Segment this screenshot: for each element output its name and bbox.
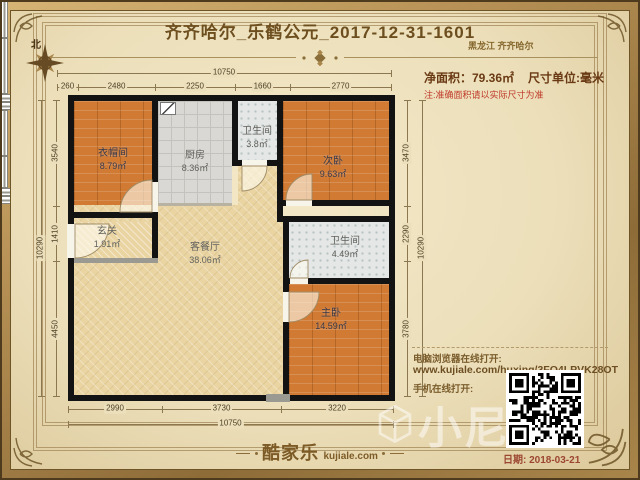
room-label-entry: 玄关 1.91㎡ xyxy=(80,226,134,250)
dimension-line xyxy=(391,70,392,77)
kitchen-threshold xyxy=(158,203,232,206)
dimension-label: 1660 xyxy=(252,83,274,92)
pc-open-label: 电脑浏览器在线打开: xyxy=(413,351,502,365)
dimension-line xyxy=(155,84,156,91)
logo-ornament xyxy=(236,453,250,454)
dimension-label: 10290 xyxy=(37,235,46,261)
room-label-kitchen: 厨房 8.36㎡ xyxy=(164,150,226,174)
wall-outer-right xyxy=(389,95,395,401)
dimension-label: 260 xyxy=(59,83,76,92)
room-label-bedroom2: 次卧 9.63㎡ xyxy=(302,156,364,180)
dimension-line xyxy=(290,84,291,91)
title-divider xyxy=(42,57,296,58)
logo-ornament xyxy=(255,452,258,455)
room-label-living: 客餐厅 38.06㎡ xyxy=(172,242,238,266)
second-bedroom-floor xyxy=(283,101,389,200)
dimension-label: 3220 xyxy=(326,405,348,414)
door-gap-master xyxy=(283,292,289,322)
room-label-closet: 衣帽间 8.79㎡ xyxy=(82,148,144,172)
region-label: 黑龙江 齐齐哈尔 xyxy=(468,39,534,52)
dimension-line xyxy=(419,100,426,101)
door-gap-bath-top xyxy=(242,160,267,166)
dimension-line xyxy=(393,406,394,413)
dimension-line xyxy=(53,100,60,101)
net-area-line: 净面积：79.36㎡尺寸单位:毫米 xyxy=(424,69,618,86)
compass-icon xyxy=(24,42,66,84)
kitchen-flue-icon xyxy=(160,102,176,115)
wall-outer-bottom xyxy=(68,395,395,401)
door-gap-bedroom2 xyxy=(286,200,312,206)
dimension-line xyxy=(68,421,69,428)
door-gap-closet xyxy=(152,182,158,212)
dimension-line xyxy=(38,100,45,101)
dimension-line xyxy=(235,84,236,91)
dimension-label: 2290 xyxy=(403,223,412,245)
balcony-door-frame xyxy=(266,394,290,402)
dimension-line xyxy=(404,396,411,397)
room-label-bath-master: 卫生间 4.49㎡ xyxy=(312,236,378,260)
dimension-label: 10750 xyxy=(211,69,237,78)
floorplan-sheet: 齐齐哈尔_乐鹤公元_2017-12-31-1601 黑龙江 齐齐哈尔 净面积：7… xyxy=(0,0,640,480)
wall-bath-master-top xyxy=(283,216,389,222)
logo-ornament xyxy=(382,452,385,455)
master-bedroom-floor xyxy=(289,284,389,395)
dimension-line xyxy=(404,261,411,262)
dashed-separator xyxy=(412,347,608,348)
page-title: 齐齐哈尔_乐鹤公元_2017-12-31-1601 xyxy=(0,18,640,43)
date-label: 日期: 2018-03-21 xyxy=(503,451,580,466)
dimension-line xyxy=(57,70,58,77)
dimension-label: 10290 xyxy=(418,235,427,261)
dimension-line xyxy=(78,84,79,91)
dimension-line xyxy=(53,396,60,397)
dimension-label: 1410 xyxy=(52,223,61,245)
accuracy-note: 注:准确面积请以实际尺寸为准 xyxy=(424,88,544,101)
wall-closet-bottom xyxy=(74,212,158,218)
corridor-floor xyxy=(238,166,277,222)
door-gap-entrance xyxy=(67,224,75,258)
dimension-line xyxy=(419,396,426,397)
dimension-label: 4450 xyxy=(52,318,61,340)
dimension-label: 2990 xyxy=(104,405,126,414)
dimension-label: 3470 xyxy=(403,142,412,164)
dimension-label: 2480 xyxy=(106,83,128,92)
dimension-line xyxy=(38,396,45,397)
room-label-master: 主卧 14.59㎡ xyxy=(298,308,364,332)
wall-closet-kitchen xyxy=(152,101,158,258)
dimension-line xyxy=(281,406,282,413)
logo-ornament xyxy=(390,453,404,454)
window-living-left xyxy=(0,38,8,94)
dimension-label: 3730 xyxy=(211,405,233,414)
dimension-label: 2770 xyxy=(330,83,352,92)
window-bath-master xyxy=(0,156,8,188)
dimension-line xyxy=(68,406,69,413)
title-divider xyxy=(344,57,598,58)
dimension-line xyxy=(404,206,411,207)
door-gap-bath-master xyxy=(290,278,308,284)
dimension-label: 3780 xyxy=(403,318,412,340)
dimension-label: 10750 xyxy=(217,420,243,429)
dimension-line xyxy=(53,206,60,207)
qr-code xyxy=(506,370,584,448)
dimension-line xyxy=(391,84,392,91)
fleur-ornament-icon xyxy=(300,50,340,66)
dimension-label: 3540 xyxy=(52,142,61,164)
mobile-open-label: 手机在线打开: xyxy=(413,381,473,395)
net-area-value: 净面积：79.36㎡ xyxy=(424,71,514,85)
dimension-label: 2250 xyxy=(184,83,206,92)
room-label-bath-top: 卫生间 3.8㎡ xyxy=(235,126,279,150)
dimension-line xyxy=(53,261,60,262)
window-bedroom2-right xyxy=(0,110,8,156)
unit-label: 尺寸单位:毫米 xyxy=(528,71,604,85)
dimension-line xyxy=(393,421,394,428)
dimension-line xyxy=(404,100,411,101)
dimension-line xyxy=(162,406,163,413)
wall-entry-low xyxy=(74,258,158,263)
